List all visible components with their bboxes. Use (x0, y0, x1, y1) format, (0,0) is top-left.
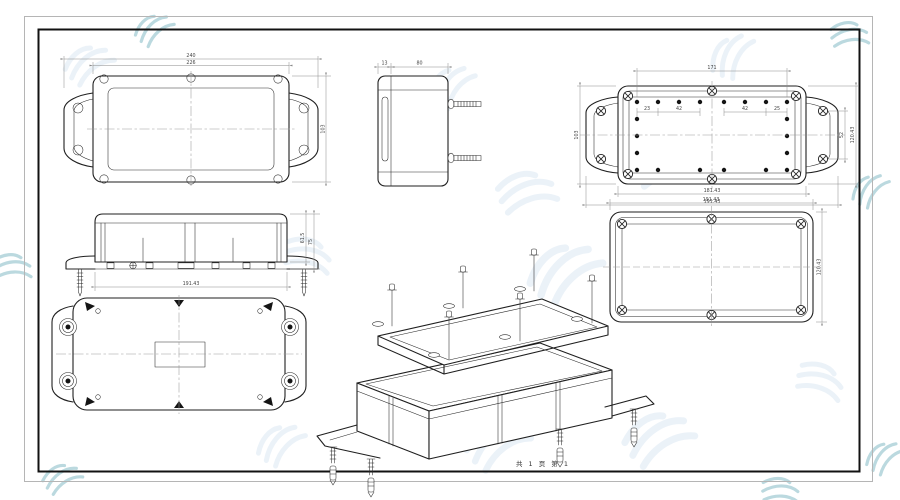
dim-base-height: 61.5 (300, 233, 306, 244)
cover-screw-icon (623, 91, 632, 100)
dim-elevation-width: 191.43 (183, 281, 200, 287)
dim-lid-height: 120.43 (817, 259, 823, 276)
exploded-assembly-view (317, 249, 654, 497)
cad-drawing: 240 226 103 13 80 (0, 0, 900, 500)
cover-screw-icon (796, 219, 805, 228)
screw-icon (448, 153, 481, 163)
lid-top-view: 240 226 103 (64, 53, 331, 187)
screw-icon (448, 99, 481, 109)
dim-hole-spacing-1: 23 (644, 106, 650, 112)
page-footer-text: 共 1 页 第 1 (516, 459, 570, 468)
dim-lid-thickness: 13 (381, 61, 387, 67)
cover-screw-icon (791, 169, 800, 178)
dim-height: 103 (321, 124, 327, 133)
dim-overall-width: 240 (186, 53, 195, 59)
dim-left-height: 103 (574, 130, 580, 139)
dim-bottom-inner-width: 181.43 (704, 188, 721, 194)
vent-hole-icon (130, 262, 137, 269)
anchor-screw-icon (367, 459, 375, 497)
cover-screw-icon (796, 305, 805, 314)
dim-lid-width: 191.43 (703, 197, 720, 203)
dim-top-hole-span: 171 (707, 65, 716, 71)
anchor-screw-icon (329, 447, 337, 485)
drawing-sheet: 240 226 103 13 80 (0, 0, 900, 500)
dim-hole-spacing-4: 25 (774, 106, 780, 112)
base-inside-view: 171 23 42 42 25 103 52 120.43 181.43 191… (574, 65, 859, 208)
mounting-screw-icon (77, 269, 83, 296)
cover-screw-icon (617, 305, 626, 314)
flange-screw-icon (818, 106, 827, 115)
lid-face-view: 191.43 120.43 (603, 197, 827, 328)
bottom-view (52, 295, 306, 414)
dim-right-outer-height: 120.43 (850, 127, 856, 144)
flange-screw-icon (596, 106, 605, 115)
cover-screw-icon (617, 219, 626, 228)
dim-base-depth: 80 (416, 61, 422, 67)
dim-hole-spacing-2: 42 (676, 106, 682, 112)
mounting-screw-icon (301, 269, 307, 296)
flange-screw-icon (596, 154, 605, 163)
dim-total-height: 75 (308, 239, 314, 245)
dim-right-inner-height: 52 (839, 132, 845, 138)
flange-screw-icon (818, 154, 827, 163)
cover-screw-icon (623, 169, 632, 178)
side-elevation-view: 191.43 61.5 75 (66, 214, 320, 296)
dim-body-width: 226 (186, 60, 195, 66)
dim-hole-spacing-3: 42 (742, 106, 748, 112)
cover-screw-icon (791, 91, 800, 100)
